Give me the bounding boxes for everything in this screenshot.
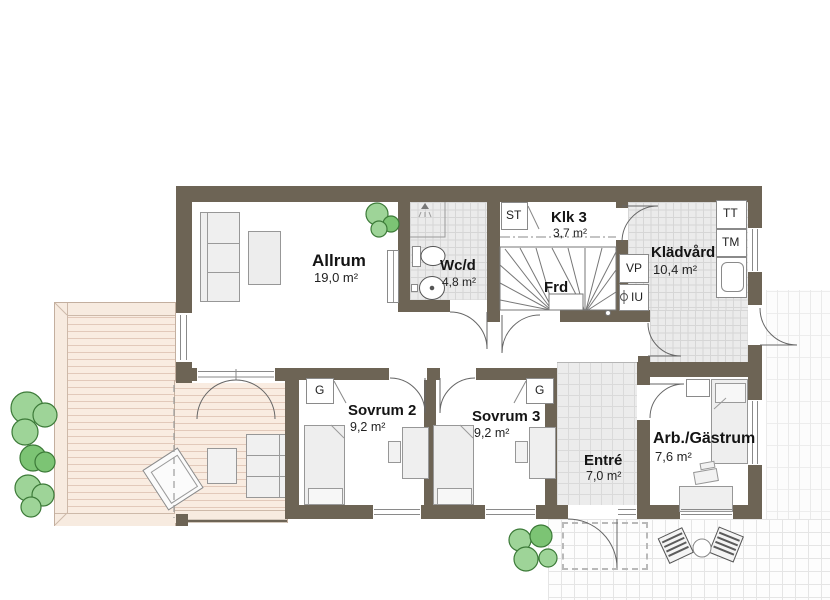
fixture-label-vp: VP xyxy=(626,262,642,274)
deck-table xyxy=(207,448,237,484)
fixture-label-tt: TT xyxy=(723,207,738,219)
room-area-kladvard: 10,4 m² xyxy=(653,263,697,276)
tree-icon xyxy=(15,475,54,517)
arb-bed xyxy=(711,379,748,464)
deck-frame-top xyxy=(55,303,175,316)
room-label-allrum: Allrum xyxy=(312,252,366,269)
kladvard-exterior-door-opening xyxy=(748,305,762,345)
wall-allrum-bottom-left xyxy=(176,368,197,381)
entrance-sidelight xyxy=(617,505,637,519)
sovrum3-desk xyxy=(529,427,556,479)
room-area-sovrum2: 9,2 m² xyxy=(350,421,385,434)
deck-frame-bottom xyxy=(55,513,175,526)
sovrum3-pillow xyxy=(437,488,472,505)
fixture-label-st: ST xyxy=(506,209,521,221)
wall-kladvard-left-upper xyxy=(616,202,628,208)
wall-right-4 xyxy=(748,465,762,519)
wall-left-upper xyxy=(176,202,192,313)
room-area-allrum: 19,0 m² xyxy=(314,271,358,284)
wall-klk3-left xyxy=(487,202,500,322)
wall-bottom-4 xyxy=(637,505,680,519)
wall-kladvard-bottom xyxy=(637,362,748,377)
room-label-wcd: Wc/d xyxy=(440,258,476,273)
sovrum2-chair xyxy=(388,441,401,463)
wall-corridor-2 xyxy=(427,368,440,380)
tree-icon xyxy=(11,392,57,445)
room-label-frd: Frd xyxy=(544,280,568,295)
allrum-sofa xyxy=(200,212,240,302)
room-label-entre: Entré xyxy=(584,453,622,468)
deck-sofa xyxy=(246,434,288,498)
wall-wcd-left xyxy=(398,202,410,312)
sovrum3-chair xyxy=(515,441,528,463)
arb-pillow xyxy=(715,383,746,403)
fixture-label-g-sovrum2: G xyxy=(315,384,324,396)
window-sovrum3 xyxy=(485,505,536,519)
deck-frame-left xyxy=(55,303,68,525)
room-label-arbgastrum: Arb./Gästrum xyxy=(653,431,755,447)
room-area-entre: 7,0 m² xyxy=(586,470,621,483)
sovrum2-pillow xyxy=(308,488,343,505)
deck-frame-bottom-2 xyxy=(175,510,287,523)
sovrum2-desk xyxy=(402,427,429,479)
room-area-klk3: 3,7 m² xyxy=(553,227,587,239)
wall-top xyxy=(176,186,762,202)
window-allrum-left xyxy=(176,313,192,362)
sovrum2-bed xyxy=(304,425,345,505)
entrance-canopy-outline xyxy=(562,522,648,570)
fixture-label-tm: TM xyxy=(722,236,739,248)
room-label-klk3: Klk 3 xyxy=(551,210,587,225)
room-label-kladvard: Klädvård xyxy=(651,245,715,260)
floor-plan: Allrum 19,0 m² Wc/d 4,8 m² Klk 3 3,7 m² … xyxy=(0,0,830,600)
sovrum3-bed xyxy=(433,425,474,505)
allrum-sofa-seam-1 xyxy=(207,243,239,244)
wall-right-2 xyxy=(748,272,762,305)
entrance-door-opening xyxy=(568,505,617,519)
window-kladvard-right xyxy=(748,228,762,272)
room-area-sovrum3: 9,2 m² xyxy=(474,427,509,440)
kladvard-sink xyxy=(721,262,744,292)
fixture-label-iu: IU xyxy=(631,291,643,303)
allrum-armchair xyxy=(248,231,281,285)
room-area-wcd: 4,8 m² xyxy=(442,276,476,288)
deck-post xyxy=(176,514,188,526)
allrum-sofa-seam-2 xyxy=(207,272,239,273)
window-sovrum2 xyxy=(373,505,421,519)
wall-stairs-bottom xyxy=(560,310,650,322)
wall-sovrum2-left xyxy=(285,368,299,519)
tree-icon xyxy=(20,445,55,472)
wall-wcd-bottom xyxy=(398,300,450,312)
wall-hall-kladvard-stub xyxy=(638,356,650,364)
wall-arb-left-lower xyxy=(637,420,650,505)
floor-kladvard-lower xyxy=(650,310,748,362)
balcony-door-opening xyxy=(197,368,275,381)
wall-bottom-1 xyxy=(299,505,373,519)
arb-desk xyxy=(679,486,733,512)
wall-right-1 xyxy=(748,202,762,228)
sink-tap xyxy=(411,284,418,292)
wall-bottom-2 xyxy=(421,505,485,519)
arb-wardrobe xyxy=(686,379,710,397)
deck-sofa-backrest xyxy=(279,435,280,497)
floor-entre xyxy=(557,362,637,505)
wall-right-3 xyxy=(748,345,762,400)
room-label-sovrum2: Sovrum 2 xyxy=(348,403,416,418)
allrum-sofa-back xyxy=(207,213,208,301)
room-label-sovrum3: Sovrum 3 xyxy=(472,409,540,424)
wall-arb-left-upper xyxy=(637,377,650,385)
wall-bottom-3 xyxy=(536,505,568,519)
allrum-radiator xyxy=(387,250,399,303)
fixture-label-g-sovrum3: G xyxy=(535,384,544,396)
kladvard-counter xyxy=(716,257,747,298)
room-area-arbgastrum: 7,6 m² xyxy=(655,450,692,463)
toilet-tank xyxy=(412,246,421,267)
